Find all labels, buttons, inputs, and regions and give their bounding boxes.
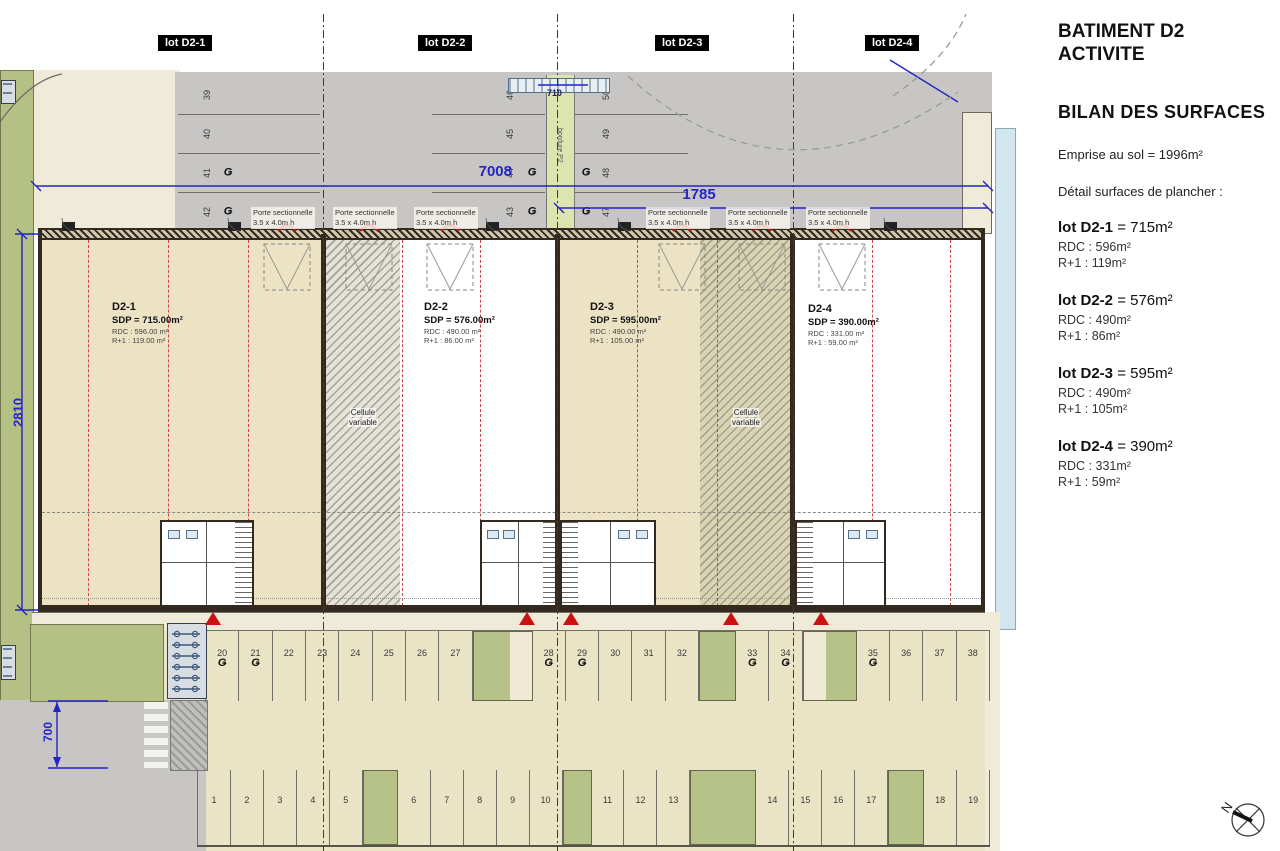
- cellule-variable-label-2: Cellulevariable: [723, 408, 769, 428]
- lot-tag-d2-2: lot D2-2: [418, 35, 472, 51]
- stall-number: 19: [957, 795, 989, 805]
- parking-stall-36: 36: [890, 631, 923, 701]
- bordure-label: bordure P2: [556, 128, 563, 163]
- partition: [482, 562, 543, 563]
- parking-stall-5: 5: [330, 770, 363, 845]
- lot-tag-d2-4: lot D2-4: [865, 35, 919, 51]
- grid-line: [717, 240, 718, 606]
- parking-stall-15: 15: [789, 770, 822, 845]
- ev-charging-icon: Ǥ: [224, 168, 233, 179]
- detail-heading: Détail surfaces de plancher :: [1058, 184, 1276, 199]
- stall-number: 8: [464, 795, 496, 805]
- door-label: Porte sectionnelle3.5 x 4.0m h: [333, 207, 397, 229]
- unit-rdc: RDC : 490.00 m²: [590, 327, 661, 336]
- stall-number: 1: [198, 795, 230, 805]
- unit-label-d2-4: D2-4 SDP = 390.00m² RDC : 331.00 m² R+1 …: [808, 303, 879, 347]
- parking-stall-26: 26: [406, 631, 439, 701]
- stall-number: 26: [406, 648, 438, 658]
- parking-stall-45: 45: [432, 115, 545, 154]
- unit-sdp: SDP = 390.00m²: [808, 317, 879, 329]
- stall-number: 43: [505, 207, 515, 217]
- lot-tag-d2-1: lot D2-1: [158, 35, 212, 51]
- parking-stall-18: 18: [924, 770, 957, 845]
- stall-number: 37: [923, 648, 955, 658]
- ev-charging-icon: Ǥ: [566, 658, 598, 669]
- parking-stall-33: 33Ǥ: [736, 631, 769, 701]
- parking-stall-24: 24: [339, 631, 372, 701]
- parking-stall-40: 40: [178, 115, 320, 154]
- ev-charging-icon: Ǥ: [224, 207, 233, 218]
- parking-stall-21: 21Ǥ: [239, 631, 272, 701]
- north-arrow-icon: [1232, 804, 1264, 836]
- ev-charging-icon: Ǥ: [206, 658, 238, 669]
- planting-island: [699, 631, 736, 701]
- planting-island: [473, 631, 533, 701]
- stall-number: 40: [202, 129, 212, 139]
- stall-number: 6: [398, 795, 430, 805]
- parking-stall-37: 37: [923, 631, 956, 701]
- parking-stall-35: 35Ǥ: [857, 631, 890, 701]
- surface-summary-panel: BATIMENT D2 ACTIVITE BILAN DES SURFACES …: [1058, 20, 1276, 491]
- parking-stall-30: 30: [599, 631, 632, 701]
- ev-charging-icon: Ǥ: [582, 207, 591, 218]
- parking-stall-28: 28Ǥ: [533, 631, 566, 701]
- parking-stall-25: 25: [373, 631, 406, 701]
- dim-1785: 1785: [658, 186, 740, 203]
- dim-710: 710: [547, 88, 562, 98]
- stair-d2-3: [562, 522, 578, 609]
- emprise-text: Emprise au sol = 1996m²: [1058, 147, 1276, 162]
- stall-number: 11: [592, 795, 624, 805]
- stall-number: 30: [599, 648, 631, 658]
- dim-7008: 7008: [430, 163, 512, 180]
- stall-number: 25: [373, 648, 405, 658]
- unit-rdc: RDC : 596.00 m²: [112, 327, 183, 336]
- bike-rack: [167, 623, 207, 699]
- partition: [813, 562, 884, 563]
- partition: [843, 522, 844, 609]
- stall-number: 27: [439, 648, 471, 658]
- ev-charging-icon: Ǥ: [736, 658, 768, 669]
- parking-stall-3: 3: [264, 770, 297, 845]
- wc-fixture: [487, 530, 499, 539]
- parking-stall-17: 17: [855, 770, 888, 845]
- stall-number: 45: [505, 129, 515, 139]
- ev-charging-icon: Ǥ: [769, 658, 801, 669]
- stair-d2-4: [797, 522, 813, 609]
- stall-number: 13: [657, 795, 689, 805]
- core-block-d2-1: [160, 520, 254, 611]
- stall-number: 12: [624, 795, 656, 805]
- wc-fixture: [848, 530, 860, 539]
- ev-charging-icon: Ǥ: [528, 168, 537, 179]
- ev-charging-icon: Ǥ: [857, 658, 889, 669]
- unit-label-d2-3: D2-3 SDP = 595.00m² RDC : 490.00 m² R+1 …: [590, 301, 661, 345]
- crosswalk: [144, 702, 168, 768]
- stall-number: 14: [756, 795, 788, 805]
- stall-number: 3: [264, 795, 296, 805]
- core-block-d2-2: [480, 520, 561, 611]
- stair-d2-1: [235, 522, 252, 609]
- parking-stall-1: 1: [197, 770, 231, 845]
- lot-summary-d2-1: lot D2-1 = 715m² RDC : 596m² R+1 : 119m²: [1058, 218, 1276, 272]
- site-plan-sheet: bordure P2: [0, 0, 1280, 851]
- parking-stall-31: 31: [632, 631, 665, 701]
- right-blue-strip: [995, 128, 1016, 630]
- lot-summary-d2-3: lot D2-3 = 595m² RDC : 490m² R+1 : 105m²: [1058, 364, 1276, 418]
- stall-number: 18: [924, 795, 956, 805]
- stall-number: 32: [666, 648, 698, 658]
- unit-r1: R+1 : 119.00 m²: [112, 336, 183, 345]
- unit-rdc: RDC : 490.00 m²: [424, 327, 495, 336]
- parking-stall-8: 8: [464, 770, 497, 845]
- ev-charging-icon: Ǥ: [582, 168, 591, 179]
- unit-r1: R+1 : 86.00 m²: [424, 336, 495, 345]
- stall-number: 49: [601, 129, 611, 139]
- ev-charging-icon: Ǥ: [533, 658, 565, 669]
- building-south-wall: [38, 605, 985, 612]
- lot-boundary-line-1: [323, 14, 324, 851]
- core-block-d2-4: [795, 520, 886, 611]
- parking-stall-4: 4: [297, 770, 330, 845]
- planting-island: [888, 770, 924, 845]
- lot-boundary-line-3: [793, 14, 794, 851]
- ramp-hatch: [170, 700, 208, 771]
- parking-stall-27: 27: [439, 631, 472, 701]
- building-west-wall: [38, 228, 42, 612]
- door-label: Porte sectionnelle3.5 x 4.0m h: [726, 207, 790, 229]
- green-patch-left: [30, 624, 164, 702]
- bike-rack-small-top: [1, 80, 16, 104]
- stall-number: 7: [431, 795, 463, 805]
- parking-stall-2: 2: [231, 770, 264, 845]
- unit-sdp: SDP = 576.00m²: [424, 315, 495, 327]
- bike-rack-small-left: [1, 645, 16, 680]
- stall-number: 39: [202, 90, 212, 100]
- wc-fixture: [618, 530, 630, 539]
- top-right-band: [962, 112, 992, 234]
- partition: [610, 522, 611, 609]
- dim-700: 700: [41, 702, 55, 762]
- stall-number: 41: [202, 168, 212, 178]
- grid-line: [88, 240, 89, 606]
- plan-title: BATIMENT D2 ACTIVITE: [1058, 20, 1276, 66]
- planting-island: [363, 770, 398, 845]
- partition: [206, 522, 207, 609]
- stall-number: 4: [297, 795, 329, 805]
- unit-id: D2-3: [590, 301, 661, 315]
- unit-r1: R+1 : 105.00 m²: [590, 336, 661, 345]
- wc-fixture: [866, 530, 878, 539]
- building-east-wall: [981, 228, 985, 612]
- parking-stall-11: 11: [592, 770, 625, 845]
- lot-tag-d2-3: lot D2-3: [655, 35, 709, 51]
- cellule-variable-label-1: Cellulevariable: [340, 408, 386, 428]
- stall-number: 16: [822, 795, 854, 805]
- core-block-d2-3: [560, 520, 656, 611]
- door-label: Porte sectionnelle3.5 x 4.0m h: [646, 207, 710, 229]
- lot-summary-d2-2: lot D2-2 = 576m² RDC : 490m² R+1 : 86m²: [1058, 291, 1276, 345]
- parking-stall-29: 29Ǥ: [566, 631, 599, 701]
- north-label: N: [1218, 799, 1236, 815]
- unit-label-d2-2: D2-2 SDP = 576.00m² RDC : 490.00 m² R+1 …: [424, 301, 495, 345]
- partition: [518, 522, 519, 609]
- planting-island: [690, 770, 756, 845]
- stall-number: 31: [632, 648, 664, 658]
- unit-sdp: SDP = 715.00m²: [112, 315, 183, 327]
- planting-island: [803, 631, 857, 701]
- stall-number: 42: [202, 207, 212, 217]
- parking-stall-20: 20Ǥ: [205, 631, 239, 701]
- surfaces-heading: BILAN DES SURFACES: [1058, 102, 1276, 123]
- partition: [162, 562, 235, 563]
- stall-number: 2: [231, 795, 263, 805]
- parking-stall-49: 49: [575, 115, 688, 154]
- parking-row-bottom: 12345678910111213141516171819: [197, 770, 990, 847]
- partition: [578, 562, 654, 563]
- parking-stall-19: 19: [957, 770, 990, 845]
- parking-stall-16: 16: [822, 770, 855, 845]
- parking-stall-9: 9: [497, 770, 530, 845]
- stall-number: 24: [339, 648, 371, 658]
- planting-island: [563, 770, 592, 845]
- unit-r1: R+1 : 59.00 m²: [808, 338, 879, 347]
- parking-stall-14: 14: [756, 770, 789, 845]
- door-label: Porte sectionnelle3.5 x 4.0m h: [414, 207, 478, 229]
- parking-stall-32: 32: [666, 631, 699, 701]
- wc-fixture: [168, 530, 180, 539]
- stall-number: 48: [601, 168, 611, 178]
- unit-id: D2-1: [112, 301, 183, 315]
- door-label: Porte sectionnelle3.5 x 4.0m h: [251, 207, 315, 229]
- building-north-wall: [38, 228, 985, 240]
- wc-fixture: [186, 530, 198, 539]
- stall-number: 22: [273, 648, 305, 658]
- ev-charging-icon: Ǥ: [528, 207, 537, 218]
- stall-number: 36: [890, 648, 922, 658]
- stall-number: 15: [789, 795, 821, 805]
- grid-line: [950, 240, 951, 606]
- lot-summary-d2-4: lot D2-4 = 390m² RDC : 331m² R+1 : 59m²: [1058, 437, 1276, 491]
- wc-fixture: [503, 530, 515, 539]
- stall-number: 17: [855, 795, 887, 805]
- door-label: Porte sectionnelle3.5 x 4.0m h: [806, 207, 870, 229]
- parking-stall-38: 38: [957, 631, 990, 701]
- stall-number: 38: [957, 648, 989, 658]
- parking-stall-34: 34Ǥ: [769, 631, 802, 701]
- unit-label-d2-1: D2-1 SDP = 715.00m² RDC : 596.00 m² R+1 …: [112, 301, 183, 345]
- grid-line: [402, 240, 403, 606]
- dim-2810: 2810: [11, 383, 26, 443]
- wc-fixture: [636, 530, 648, 539]
- parking-stall-22: 22: [273, 631, 306, 701]
- stall-number: 47: [601, 207, 611, 217]
- ev-charging-icon: Ǥ: [239, 658, 271, 669]
- unit-id: D2-2: [424, 301, 495, 315]
- mezzanine-edge-line: [42, 512, 981, 513]
- unit-rdc: RDC : 331.00 m²: [808, 329, 879, 338]
- parking-stall-41: 41Ǥ: [178, 154, 320, 193]
- unit-id: D2-4: [808, 303, 879, 317]
- parking-stall-13: 13: [657, 770, 690, 845]
- stall-number: 9: [497, 795, 529, 805]
- parking-stall-12: 12: [624, 770, 657, 845]
- parking-stall-6: 6: [398, 770, 431, 845]
- stall-number: 5: [330, 795, 362, 805]
- parking-stall-39: 39: [178, 76, 320, 115]
- unit-sdp: SDP = 595.00m²: [590, 315, 661, 327]
- parking-stall-7: 7: [431, 770, 464, 845]
